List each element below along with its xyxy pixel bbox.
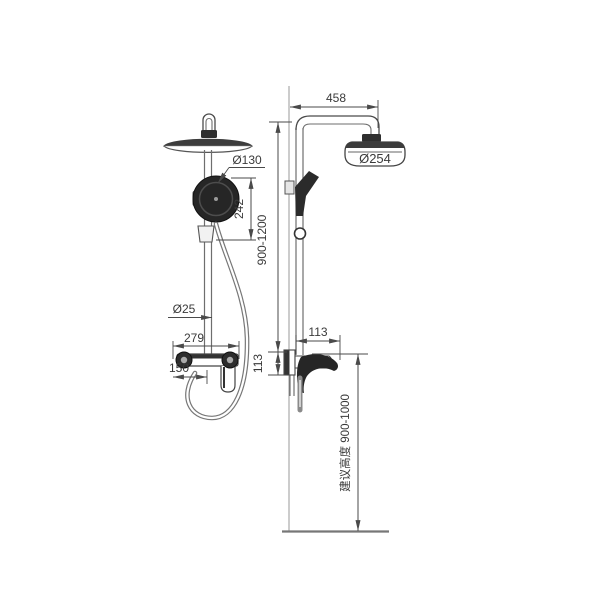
dim-install-height: 建议高度 900-1000 [312,354,368,531]
dim-hand-shower-span-label: 242 [232,199,246,219]
overhead-shower-side: Ø254 [345,142,405,166]
head-nut-side [362,134,381,142]
riser-top-loop [201,114,217,138]
dim-mixer-height: 113 [251,352,287,375]
head-nut [201,130,217,138]
dim-mixer-depth-label: 113 [308,325,327,339]
dim-mixer-center-offset-label: 150 [169,361,189,375]
rail-slider-clamp [198,226,214,242]
dim-arm-reach: 458 [290,91,378,128]
dim-pipe-diameter: Ø25 [168,302,212,318]
hose-ring-side [295,228,306,239]
mixer-handle-side [297,354,338,393]
dim-mixer-width-label: 279 [184,331,204,345]
mixer-side [284,350,338,396]
dim-head-diameter-label: Ø254 [359,151,391,166]
shower-hose-front [187,224,247,418]
dim-riser-height-range-label: 900-1200 [255,214,269,265]
technical-drawing-svg: Ø130 242 Ø25 279 150 [0,0,600,600]
dim-mixer-height-label: 113 [251,354,265,373]
front-view: Ø130 242 Ø25 279 150 [164,114,265,418]
riser-pipe-side [296,128,303,355]
dim-install-height-label: 建议高度 900-1000 [338,394,352,492]
side-view: Ø254 458 [251,86,405,532]
drawing-canvas: Ø130 242 Ø25 279 150 [0,0,600,600]
dim-hand-shower-diameter-label: Ø130 [232,153,262,167]
hand-shower-side [285,171,319,216]
shower-arm-side [296,116,381,142]
overhead-shower-front [164,139,252,152]
dim-arm-reach-label: 458 [326,91,346,105]
dim-pipe-diameter-label: Ø25 [173,302,196,316]
